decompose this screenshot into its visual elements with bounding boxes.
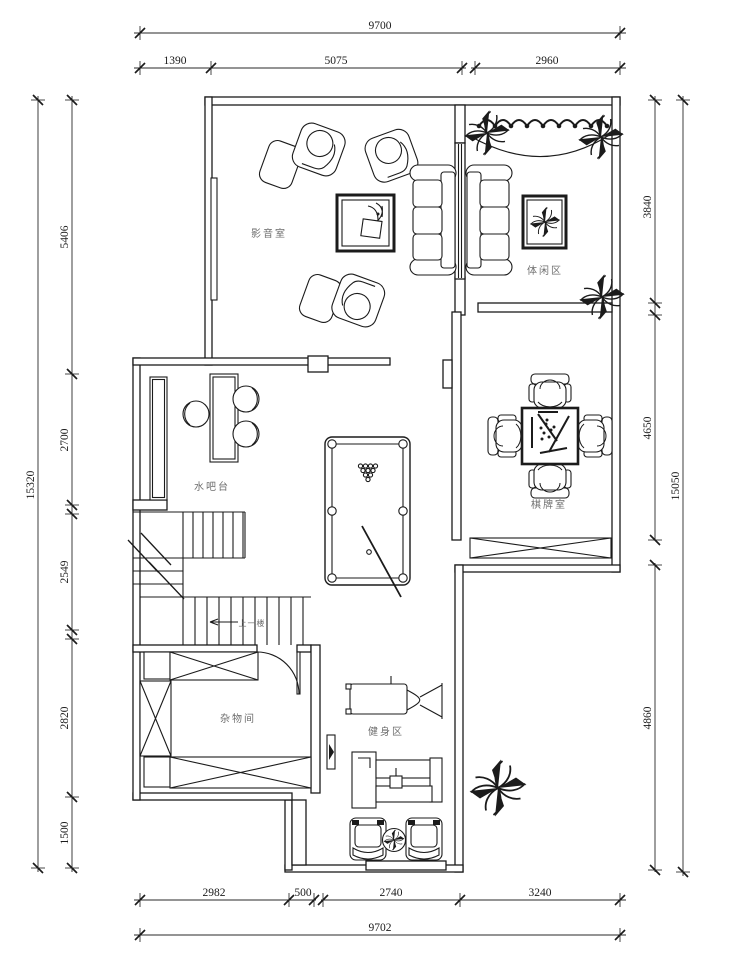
water-bar: 水吧台	[150, 374, 259, 500]
partition-window	[455, 143, 465, 279]
lounge-chair	[329, 271, 388, 330]
stairs-note-label: 上一楼	[239, 618, 266, 628]
sofa-media	[410, 165, 456, 275]
dim-left-seg3: 2820	[59, 706, 71, 729]
media-room-label: 影音室	[251, 227, 287, 240]
bar-stool	[183, 401, 209, 427]
cabinet-x	[470, 538, 611, 558]
wall-right-upper	[612, 97, 620, 572]
wall-stairs-head	[133, 500, 167, 510]
dim-top-seg0: 1390	[164, 55, 187, 67]
stair-treads-upper	[183, 512, 243, 558]
wall-wing-bottom	[455, 565, 620, 572]
wall-storage-north-a	[133, 645, 257, 652]
staircase: 上一楼	[128, 512, 311, 645]
area-rug	[337, 195, 394, 251]
wall-chess-west-notch	[443, 360, 452, 388]
coffee-table	[523, 196, 566, 248]
game-chair	[529, 464, 571, 498]
cabinet-x	[170, 757, 311, 788]
lounge-chair	[289, 120, 348, 179]
water-bar-label: 水吧台	[194, 480, 230, 493]
bar-stool	[233, 421, 259, 447]
partition-stub-top	[455, 105, 465, 143]
cabinet-x	[140, 681, 171, 756]
armchair	[406, 818, 442, 860]
dimension-right: 3840 4650 4860 15050	[642, 95, 690, 877]
dim-bottom-seg0: 2982	[203, 887, 226, 899]
bar-counter	[210, 374, 238, 462]
up-arrow	[210, 619, 238, 625]
wall-right-lower	[455, 565, 463, 872]
leisure-area: 体闲区	[464, 110, 625, 320]
wall-media-south	[133, 358, 390, 365]
treadmill	[346, 676, 442, 719]
storage-room-label: 杂物间	[220, 712, 256, 725]
plant-table	[383, 829, 406, 852]
dim-left-overall: 15320	[25, 470, 37, 499]
dim-right-seg0: 3840	[642, 195, 654, 218]
chess-room-label: 棋牌室	[531, 498, 567, 511]
dimension-top: 9700 1390 5075 2960	[134, 20, 626, 75]
door	[257, 652, 300, 694]
storage-room: 杂物间	[140, 652, 311, 788]
dim-right-seg2: 4860	[642, 706, 654, 729]
game-chair	[578, 415, 612, 457]
wall-left-lower	[133, 358, 140, 800]
floor-plan-page: 影音室 体闲区 水吧台	[0, 0, 740, 976]
dim-bottom-overall: 9702	[369, 922, 392, 934]
leisure-area-label: 体闲区	[527, 264, 563, 277]
game-chair	[529, 374, 571, 408]
wall-fixture	[327, 735, 335, 769]
game-chair	[488, 415, 522, 457]
wall-chess-west	[452, 312, 461, 540]
armchair	[350, 818, 386, 860]
fitness-area: 健身区	[327, 676, 442, 860]
dimension-left: 5406 2700 2549 2820 1500 15320	[25, 95, 79, 873]
dim-top-seg1: 5075	[325, 55, 348, 67]
media-room: 影音室	[211, 120, 456, 330]
wall-top	[205, 97, 620, 105]
dim-top-overall: 9700	[369, 20, 392, 32]
window-niche	[211, 178, 217, 300]
partition-stub-bottom	[455, 277, 465, 315]
entry-threshold	[366, 861, 446, 870]
dim-left-seg4: 1500	[59, 821, 71, 844]
dim-left-seg0: 5406	[59, 225, 71, 248]
pool-table	[325, 437, 410, 597]
cabinet	[144, 757, 170, 787]
dim-bottom-seg1: 500	[294, 887, 312, 899]
chess-room: 棋牌室	[470, 374, 612, 558]
sofa-leisure	[466, 165, 512, 275]
dim-bottom-seg3: 3240	[529, 887, 552, 899]
floor-plan-drawing: 影音室 体闲区 水吧台	[0, 0, 740, 976]
column	[308, 356, 328, 372]
wall-step-left-bottom	[285, 800, 292, 870]
dim-right-seg1: 4650	[642, 416, 654, 439]
exercise-bench	[352, 752, 442, 808]
wall-storage-east	[311, 645, 320, 793]
wall-stub-vestibule	[292, 800, 306, 865]
dim-bottom-seg2: 2740	[380, 887, 403, 899]
cabinet	[144, 652, 170, 679]
plant-icon	[470, 760, 527, 817]
plant-icon	[464, 110, 510, 156]
dim-left-seg1: 2700	[59, 428, 71, 451]
dimension-bottom: 2982 500 2740 3240 9702	[134, 887, 626, 942]
mahjong-table	[522, 408, 578, 464]
dim-right-overall: 15050	[670, 471, 682, 500]
wall-storage-north-b	[297, 645, 311, 652]
dim-left-seg2: 2549	[59, 560, 71, 583]
fitness-area-label: 健身区	[368, 725, 404, 738]
cabinet-x	[170, 652, 258, 680]
dim-top-seg2: 2960	[536, 55, 559, 67]
wall-storage-bottom	[133, 793, 292, 800]
bar-stool	[233, 386, 259, 412]
